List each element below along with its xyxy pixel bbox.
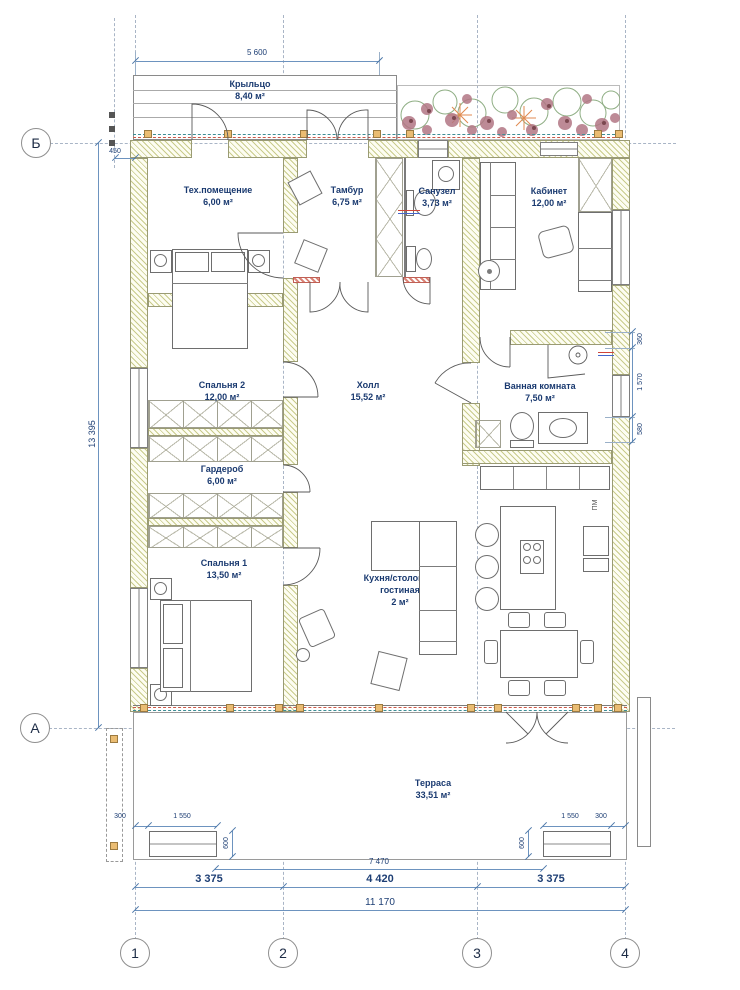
dim-line — [98, 143, 99, 728]
bar-stool — [475, 523, 499, 547]
nightstand-lamp — [154, 582, 167, 595]
dim-line — [215, 869, 543, 870]
pillow — [175, 252, 209, 272]
room-name: Кабинет — [509, 185, 589, 197]
wall — [510, 330, 612, 345]
dim-line — [135, 910, 625, 911]
toilet-tank — [510, 440, 534, 448]
room-label-bedroom2: Спальня 2 12,00 м² — [172, 379, 272, 403]
dim-text-porch-width: 5 600 — [227, 48, 287, 58]
column-mark — [109, 126, 115, 132]
bar-stool — [475, 587, 499, 611]
dim-line — [135, 887, 625, 888]
room-name: Санузел — [402, 185, 472, 197]
axis-bubble-a: А — [20, 713, 50, 743]
room-area: 3,73 м² — [402, 197, 472, 209]
room-area: 7,50 м² — [480, 392, 600, 404]
dim-line — [232, 831, 233, 857]
pipe-mark-cold — [598, 355, 614, 356]
dim-text-total-height: 13 395 — [87, 404, 97, 464]
room-area: 6,00 м² — [172, 475, 272, 487]
room-area: 33,51 м² — [383, 789, 483, 801]
column-post — [226, 704, 234, 712]
dim-text-span-23: 4 420 — [350, 873, 410, 885]
column-post — [110, 735, 118, 743]
pillow — [163, 648, 183, 688]
dim-ext — [379, 52, 380, 75]
wall — [148, 428, 283, 436]
porch-step-line — [133, 103, 397, 104]
dining-chair — [580, 640, 594, 664]
window — [130, 368, 148, 448]
closet-strip — [148, 400, 283, 428]
room-area: 6,00 м² — [158, 196, 278, 208]
pergola-post-right — [637, 697, 651, 847]
room-name: Холл — [328, 379, 408, 391]
window — [418, 140, 448, 158]
room-name: Тех.помещение — [158, 184, 278, 196]
sink-bowl — [549, 418, 577, 438]
dining-chair — [484, 640, 498, 664]
wall — [228, 140, 307, 158]
burner — [533, 556, 541, 564]
column-post — [572, 704, 580, 712]
column-post — [594, 704, 602, 712]
threshold — [293, 277, 320, 283]
side-table — [296, 648, 310, 662]
room-label-wardrobe: Гардероб 6,00 м² — [172, 463, 272, 487]
blanket-line — [190, 600, 191, 692]
dishwasher-label: ПМ — [591, 475, 601, 535]
window — [612, 375, 630, 417]
room-name: Тамбур — [307, 184, 387, 196]
dim-line — [528, 831, 529, 857]
threshold — [403, 277, 430, 283]
terrace-bench — [149, 831, 217, 857]
column-post — [275, 704, 283, 712]
flower-bed — [397, 85, 620, 140]
column-post — [594, 130, 602, 138]
closet-strip — [148, 436, 283, 462]
desk-chair — [537, 224, 575, 259]
dim-text-span-34: 3 375 — [521, 873, 581, 885]
wall — [148, 518, 283, 526]
wall — [130, 448, 148, 588]
dim-text-span-12: 3 375 — [179, 873, 239, 885]
dishwasher-unit — [583, 558, 609, 572]
wall — [612, 417, 630, 712]
wall — [462, 450, 612, 464]
room-name: Терраса — [383, 777, 483, 789]
bar-stool — [475, 555, 499, 579]
hall-closet — [375, 158, 403, 277]
dim-text: 300 — [106, 812, 134, 822]
window — [612, 210, 630, 285]
axis-bubble-2: 2 — [268, 938, 298, 968]
wall — [283, 492, 298, 548]
toilet-bowl — [510, 412, 534, 440]
terrace-bench — [543, 831, 611, 857]
porch-step-line — [133, 117, 397, 118]
column-post — [373, 130, 381, 138]
dim-text: 1 550 — [152, 812, 212, 822]
room-area: 12,00 м² — [172, 391, 272, 403]
closet-strip — [148, 493, 283, 518]
room-name: Ванная комната — [480, 380, 600, 392]
coffee-table — [370, 651, 407, 691]
column-post — [494, 704, 502, 712]
washing-machine-door — [438, 166, 454, 182]
shower-tray — [475, 420, 501, 448]
room-label-tech: Тех.помещение 6,00 м² — [158, 184, 278, 208]
sofa-chaise — [371, 521, 421, 571]
room-label-office: Кабинет 12,00 м² — [509, 185, 589, 209]
axis-bubble-1: 1 — [120, 938, 150, 968]
window — [130, 588, 148, 668]
column-post — [110, 842, 118, 850]
wall — [448, 140, 630, 158]
room-name: Гардероб — [172, 463, 272, 475]
column-post — [224, 130, 232, 138]
armchair — [298, 608, 337, 649]
dining-chair — [508, 612, 530, 628]
room-area: 12,00 м² — [509, 197, 589, 209]
room-area: 13,50 м² — [174, 569, 274, 581]
shelf-line — [578, 248, 612, 249]
wall — [612, 158, 630, 210]
cushion-line — [419, 566, 457, 567]
wall — [283, 397, 298, 465]
floor-lamp-center — [487, 269, 492, 274]
column-post — [467, 704, 475, 712]
dim-text: 300 — [587, 812, 615, 822]
axis-bubble-3: 3 — [462, 938, 492, 968]
sink-pedestal — [406, 246, 416, 272]
cushion-line — [490, 227, 516, 228]
axis-bubble-b: Б — [21, 128, 51, 158]
nightstand-lamp — [252, 254, 265, 267]
wall — [283, 585, 298, 712]
room-label-terrace: Терраса 33,51 м² — [383, 777, 483, 801]
column-mark — [109, 140, 115, 146]
dim-ext — [135, 52, 136, 75]
dim-text: 600 — [222, 813, 232, 873]
burner — [533, 543, 541, 551]
burner — [523, 556, 531, 564]
axis-bubble-4: 4 — [610, 938, 640, 968]
pillow — [211, 252, 245, 272]
wall — [283, 278, 298, 362]
dim-text: 600 — [518, 813, 528, 873]
dim-line — [135, 61, 379, 62]
pillow — [163, 604, 183, 644]
wall — [130, 158, 148, 368]
column-post — [614, 704, 622, 712]
dim-text-total-width: 11 170 — [350, 897, 410, 908]
dim-text-bath3: 580 — [636, 399, 646, 459]
dim-line — [543, 826, 625, 827]
bench — [294, 239, 328, 273]
room-area: 15,52 м² — [328, 391, 408, 403]
cushion-line — [419, 610, 457, 611]
column-post — [615, 130, 623, 138]
pipe-mark-hot — [598, 352, 614, 353]
dining-chair — [544, 612, 566, 628]
room-label-vestibule: Тамбур 6,75 м² — [307, 184, 387, 208]
burner — [523, 543, 531, 551]
room-area: 6,75 м² — [307, 196, 387, 208]
column-post — [375, 704, 383, 712]
dim-text-terrace-span: 7 470 — [349, 857, 409, 867]
dining-chair — [544, 680, 566, 696]
pipe-mark-cold — [398, 213, 420, 214]
nightstand-lamp — [154, 254, 167, 267]
cushion-line — [490, 259, 516, 260]
room-name: Крыльцо — [190, 78, 310, 90]
dining-chair — [508, 680, 530, 696]
column-post — [296, 704, 304, 712]
wall — [130, 140, 192, 158]
room-label-hall: Холл 15,52 м² — [328, 379, 408, 403]
column-post — [144, 130, 152, 138]
dim-tick — [540, 865, 547, 872]
window — [540, 142, 578, 156]
pipe-mark-hot — [398, 210, 420, 211]
column-post — [406, 130, 414, 138]
column-post — [140, 704, 148, 712]
room-name: Спальня 1 — [174, 557, 274, 569]
cushion-line — [419, 641, 457, 642]
floor-plan-canvas: ПМ Кухня/столовая/ гостиная 2 м² — [0, 0, 740, 990]
sofa-main — [419, 521, 457, 655]
room-label-bathroom: Ванная комната 7,50 м² — [480, 380, 600, 404]
wall — [612, 285, 630, 375]
column-mark — [109, 112, 115, 118]
sink-bowl — [416, 248, 432, 270]
room-label-wc: Санузел 3,73 м² — [402, 185, 472, 209]
column-post — [300, 130, 308, 138]
room-label-bedroom1: Спальня 1 13,50 м² — [174, 557, 274, 581]
closet-strip — [148, 526, 283, 548]
wall — [368, 140, 418, 158]
shelf-line — [578, 280, 612, 281]
room-name: Спальня 2 — [172, 379, 272, 391]
dining-table — [500, 630, 578, 678]
room-area: 8,40 м² — [190, 90, 310, 102]
dim-text-porch-offset: 450 — [100, 147, 130, 157]
room-label-porch: Крыльцо 8,40 м² — [190, 78, 310, 102]
blanket-line — [172, 283, 248, 284]
